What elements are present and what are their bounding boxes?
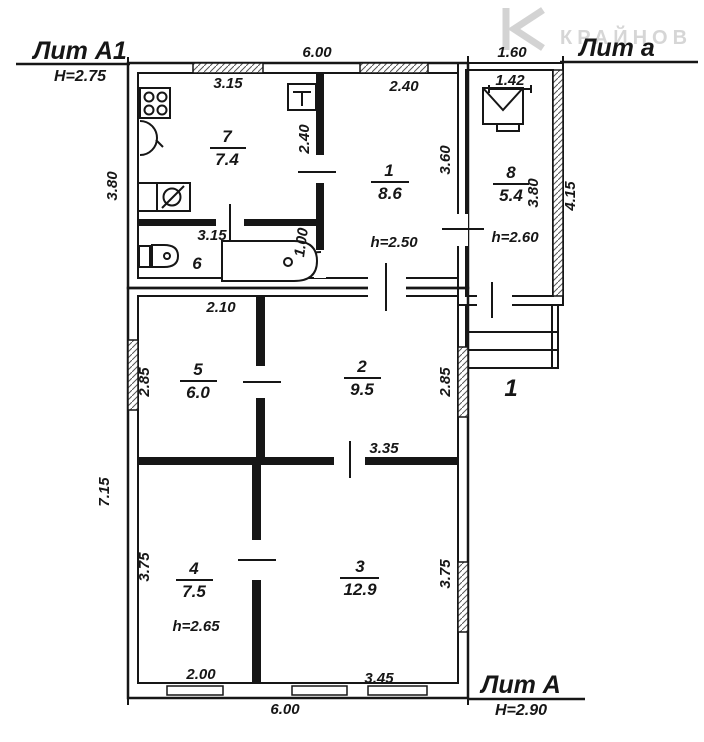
dim-room7-top: 3.15 <box>213 75 243 92</box>
room-4-area: 7.5 <box>182 582 206 601</box>
dim-room2-right: 2.85 <box>437 367 454 398</box>
window-room1-top <box>360 63 428 73</box>
room-label-3: 3 12.9 <box>340 557 379 599</box>
room-3-area: 12.9 <box>343 580 377 599</box>
porch-outline <box>466 305 558 368</box>
windows <box>128 63 468 695</box>
room-4-ceiling: h=2.65 <box>172 618 220 635</box>
dim-room8-inner: 3.80 <box>525 178 542 208</box>
wash-basin-icon <box>140 121 163 155</box>
dim-room1-top: 2.40 <box>388 78 419 95</box>
label-lit-a-height: Н=2.90 <box>495 702 547 719</box>
dim-room3-top: 3.35 <box>369 440 399 457</box>
window-room2-right <box>458 347 468 417</box>
lower-block-outer-wall <box>128 288 468 698</box>
dim-bottom-total: 6.00 <box>270 701 300 718</box>
room-7-area: 7.4 <box>215 150 239 169</box>
boiler-envelope-icon <box>483 88 523 131</box>
dim-room6-width: 3.15 <box>197 227 227 244</box>
room-2-area: 9.5 <box>350 380 374 399</box>
room-4-number: 4 <box>188 559 199 578</box>
room-8-ceiling: h=2.60 <box>491 229 539 246</box>
dim-room4-bottom: 2.00 <box>185 666 216 683</box>
room-7-number: 7 <box>222 127 233 146</box>
label-lit-a1: Лит А1 <box>31 37 127 65</box>
dim-room8-top: 1.42 <box>495 72 525 89</box>
dim-left-upper: 3.80 <box>104 171 121 201</box>
porch-steps <box>466 305 558 368</box>
room-5-number: 5 <box>193 360 203 379</box>
dim-room5-left: 2.85 <box>136 367 153 398</box>
dim-room3-bottom: 3.45 <box>364 670 394 687</box>
room-label-6: 6 <box>192 254 202 273</box>
dim-room5-top: 2.10 <box>205 299 236 316</box>
window-room3-right <box>458 562 468 632</box>
room-label-7: 7 7.4 <box>210 127 246 169</box>
stove-4-burners-icon <box>140 88 170 118</box>
room-label-5: 5 6.0 <box>180 360 217 402</box>
dim-room1-right: 3.60 <box>437 145 454 175</box>
dim-room4-left: 3.75 <box>136 552 153 582</box>
dim-room3-right: 3.75 <box>437 559 454 589</box>
dim-left-lower: 7.15 <box>96 477 113 507</box>
room-label-1: 1 8.6 h=2.50 <box>370 161 418 251</box>
room-2-number: 2 <box>356 357 367 376</box>
room-5-area: 6.0 <box>186 383 210 402</box>
dim-top-total: 6.00 <box>302 44 332 61</box>
dim-annex-top: 1.60 <box>497 44 527 61</box>
room-8-area: 5.4 <box>499 186 523 205</box>
room-label-4: 4 7.5 h=2.65 <box>172 559 220 635</box>
label-lit-a-annex: Лит а <box>577 34 655 62</box>
label-lit-a1-height: Н=2.75 <box>54 68 107 85</box>
dim-room7-right: 2.40 <box>296 124 313 155</box>
room-1-area: 8.6 <box>378 184 402 203</box>
porch-number: 1 <box>504 375 517 402</box>
window-room7-top <box>193 63 263 73</box>
room-labels: 7 7.4 1 8.6 h=2.50 8 5.4 h=2.60 6 5 6.0 … <box>172 127 539 635</box>
room-1-ceiling: h=2.50 <box>370 234 418 251</box>
toilet-icon <box>139 245 178 267</box>
kitchen-sink-icon <box>138 183 190 211</box>
label-lit-a-main: Лит А <box>479 671 561 699</box>
room-8-number: 8 <box>506 163 516 182</box>
window-room3-bottom-1 <box>292 686 347 695</box>
window-room3-bottom-2 <box>368 686 427 695</box>
water-heater-icon <box>288 84 316 110</box>
opening-8-porch <box>477 295 512 306</box>
room-3-number: 3 <box>355 557 365 576</box>
floorplan-canvas: КРАЙНОВ <box>0 0 704 742</box>
opening-7-1 <box>314 155 326 183</box>
window-room4-bottom <box>167 686 223 695</box>
room-1-number: 1 <box>384 161 393 180</box>
dim-annex-right: 4.15 <box>562 181 579 212</box>
wall-rooms-2-3 <box>138 457 458 465</box>
room-label-2: 2 9.5 <box>344 357 381 399</box>
room-6-number: 6 <box>192 254 202 273</box>
floorplan-page: КРАЙНОВ <box>0 0 704 742</box>
